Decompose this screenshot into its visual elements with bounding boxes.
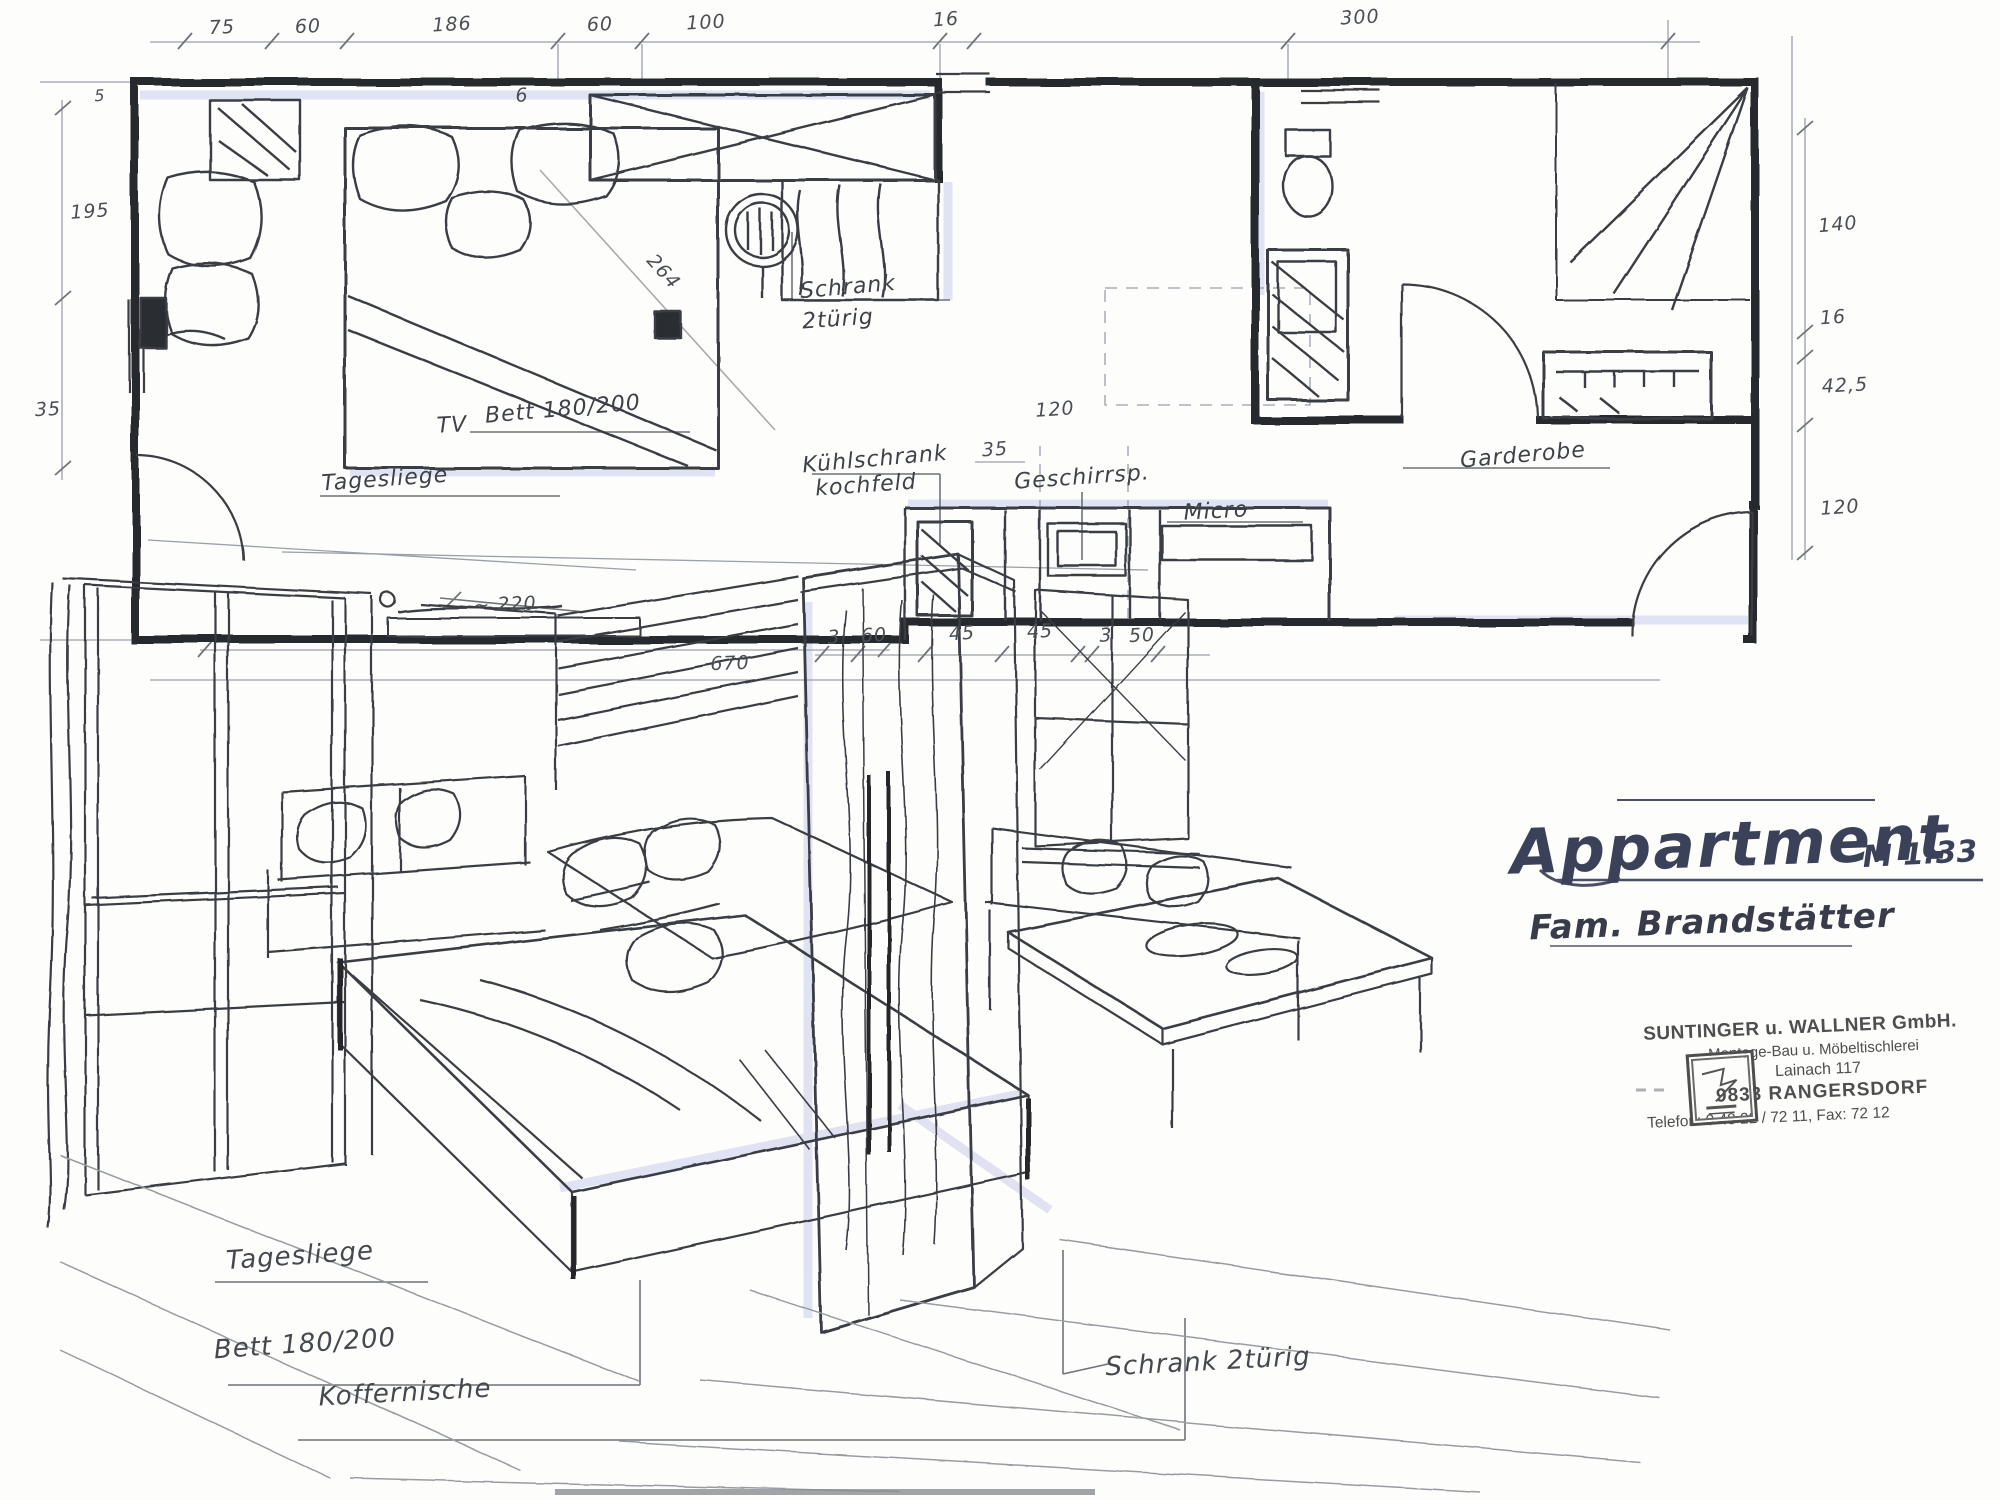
dim-top-5: 16 bbox=[932, 10, 959, 31]
dim-micro-width: 35 bbox=[981, 440, 1008, 461]
dim-top-2: 186 bbox=[432, 14, 472, 35]
dim-left-1: 35 bbox=[34, 400, 61, 420]
dim-right-3: 120 bbox=[1820, 497, 1860, 519]
dim-bottom-3: 45 bbox=[948, 624, 975, 645]
dim-top-1: 60 bbox=[295, 17, 322, 37]
dim-top-4: 100 bbox=[686, 12, 726, 33]
scanned-architectural-sketch: 75 60 186 60 100 16 300 195 35 140 16 42… bbox=[0, 0, 2000, 1500]
dim-right-1: 16 bbox=[1819, 308, 1846, 329]
dim-micro-depth: 120 bbox=[1035, 399, 1075, 421]
dim-bottom-4: 45 bbox=[1026, 622, 1053, 642]
dim-bottom-6: 50 bbox=[1128, 626, 1155, 646]
label-micro: Micro bbox=[1183, 499, 1249, 524]
dim-bottom-5: 3 bbox=[1099, 626, 1113, 645]
dim-top-6: 300 bbox=[1340, 7, 1380, 28]
dim-five: 5 bbox=[94, 88, 106, 105]
dim-six: 6 bbox=[515, 86, 529, 106]
drawing-scale: M 1:33 bbox=[1862, 837, 1978, 873]
label-tv: TV bbox=[436, 414, 468, 438]
drawing-canvas bbox=[0, 0, 2000, 1500]
dim-top-3: 60 bbox=[587, 15, 614, 35]
dim-bottom-1: 3 bbox=[827, 628, 841, 648]
dim-bottom-2: 60 bbox=[860, 626, 887, 646]
annotation-width: ~ 220 bbox=[473, 594, 537, 615]
stamp-logo bbox=[1686, 1050, 1759, 1127]
dim-bottom-0: 670 bbox=[710, 654, 750, 674]
dimension-lines bbox=[40, 20, 1805, 680]
dim-right-2: 42,5 bbox=[1821, 375, 1868, 396]
shading-strokes bbox=[140, 92, 1748, 1318]
dim-top-0: 75 bbox=[208, 18, 235, 38]
floor-boards bbox=[60, 1155, 1670, 1492]
label-schrank-line2: 2türig bbox=[801, 307, 874, 334]
dim-right-0: 140 bbox=[1818, 214, 1859, 236]
sketch-dark-edges bbox=[340, 772, 1028, 1280]
dim-left-0: 195 bbox=[70, 201, 110, 223]
